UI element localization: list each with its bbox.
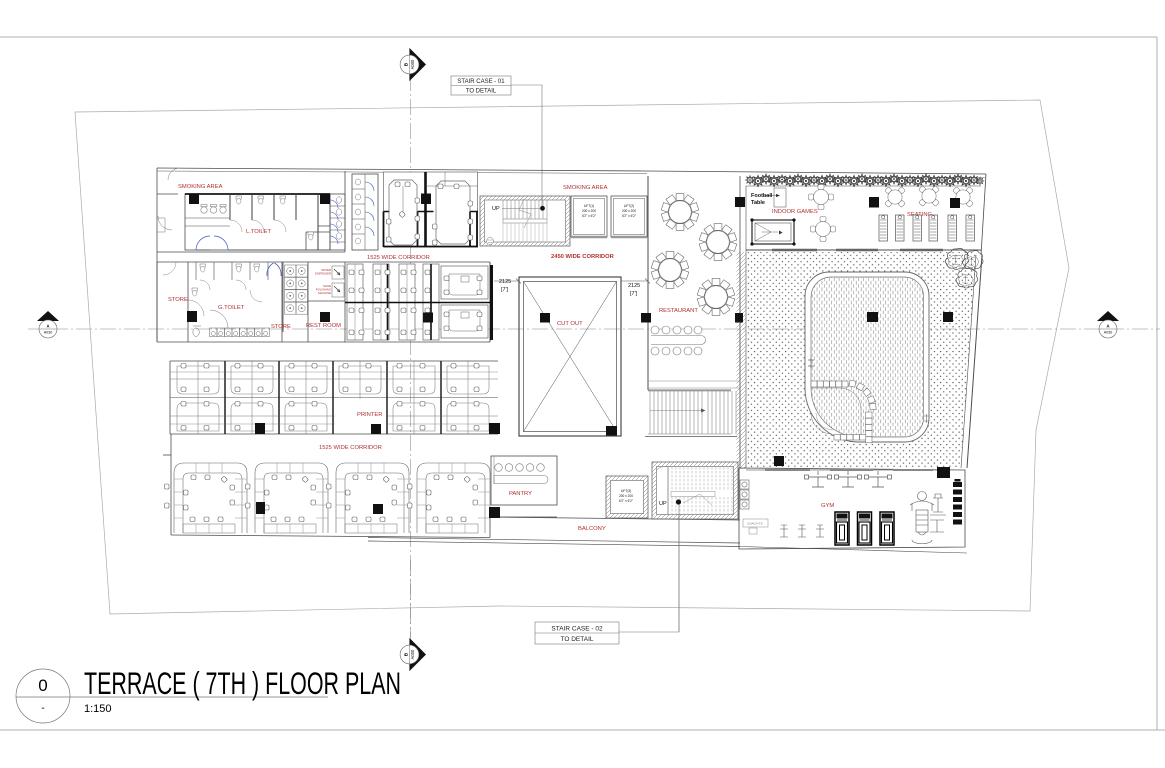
svg-text:1525 WIDE CORRIDOR: 1525 WIDE CORRIDOR <box>367 255 430 261</box>
svg-text:STORE: STORE <box>271 324 291 330</box>
svg-text:UP: UP <box>492 206 500 212</box>
svg-text:1:150: 1:150 <box>84 703 112 715</box>
svg-text:2125: 2125 <box>499 279 511 285</box>
svg-text:6'2" x 6'2": 6'2" x 6'2" <box>622 214 636 218</box>
svg-text:[7']: [7'] <box>501 287 509 293</box>
svg-text:-: - <box>41 703 44 714</box>
svg-text:UP: UP <box>659 501 667 507</box>
svg-text:DISPENSER: DISPENSER <box>315 272 331 276</box>
svg-text:COACH-TS: COACH-TS <box>747 522 763 526</box>
svg-text:STAIR CASE - 02: STAIR CASE - 02 <box>551 626 603 633</box>
svg-text:2125: 2125 <box>628 283 640 289</box>
svg-text:TO DETAIL: TO DETAIL <box>466 89 497 95</box>
svg-text:LIFT(2): LIFT(2) <box>624 204 634 208</box>
svg-text:6'2" x 6'2": 6'2" x 6'2" <box>582 214 596 218</box>
svg-text:BALCONY: BALCONY <box>578 526 606 532</box>
svg-text:Football: Football <box>751 193 773 199</box>
svg-text:Table: Table <box>751 200 765 206</box>
svg-text:MACHINE: MACHINE <box>318 291 331 295</box>
svg-text:PRINTER: PRINTER <box>357 412 382 418</box>
svg-text:2450 WIDE CORRIDOR: 2450 WIDE CORRIDOR <box>551 254 615 260</box>
svg-text:1525 WIDE CORRIDOR: 1525 WIDE CORRIDOR <box>319 445 382 451</box>
svg-text:200 x 200: 200 x 200 <box>619 494 633 498</box>
svg-text:[7']: [7'] <box>630 291 638 297</box>
svg-text:INDOOR GAMES: INDOOR GAMES <box>772 209 818 215</box>
svg-text:L.TOILET: L.TOILET <box>246 229 271 235</box>
svg-text:GYM: GYM <box>821 503 834 509</box>
svg-text:CUT OUT: CUT OUT <box>557 321 583 327</box>
svg-text:A: A <box>1106 324 1109 329</box>
svg-text:200 x 200: 200 x 200 <box>622 209 636 213</box>
svg-text:SMOKING AREA: SMOKING AREA <box>563 185 608 191</box>
svg-text:A030: A030 <box>1104 331 1112 335</box>
svg-text:LIFT(3): LIFT(3) <box>621 489 631 493</box>
svg-text:REST ROOM: REST ROOM <box>306 323 341 329</box>
svg-text:PANTRY: PANTRY <box>509 491 532 497</box>
svg-text:A: A <box>46 324 49 329</box>
svg-text:RESTAURANT: RESTAURANT <box>659 308 698 314</box>
svg-text:0: 0 <box>38 676 47 695</box>
svg-text:G.TOILET: G.TOILET <box>218 305 245 311</box>
svg-text:STAIR CASE - 01: STAIR CASE - 01 <box>457 79 505 85</box>
svg-text:A000: A000 <box>410 649 415 659</box>
svg-text:SMOKING AREA: SMOKING AREA <box>178 184 223 190</box>
svg-text:LIFT(1): LIFT(1) <box>584 204 594 208</box>
svg-text:200 x 200: 200 x 200 <box>582 209 596 213</box>
svg-text:TO DETAIL: TO DETAIL <box>561 636 594 643</box>
svg-text:6'2" x 6'2": 6'2" x 6'2" <box>619 499 633 503</box>
svg-text:A000: A000 <box>410 59 415 69</box>
svg-text:STORE: STORE <box>168 297 188 303</box>
svg-text:TERRACE ( 7TH ) FLOOR PLAN: TERRACE ( 7TH ) FLOOR PLAN <box>84 665 401 701</box>
svg-text:A030: A030 <box>44 331 52 335</box>
